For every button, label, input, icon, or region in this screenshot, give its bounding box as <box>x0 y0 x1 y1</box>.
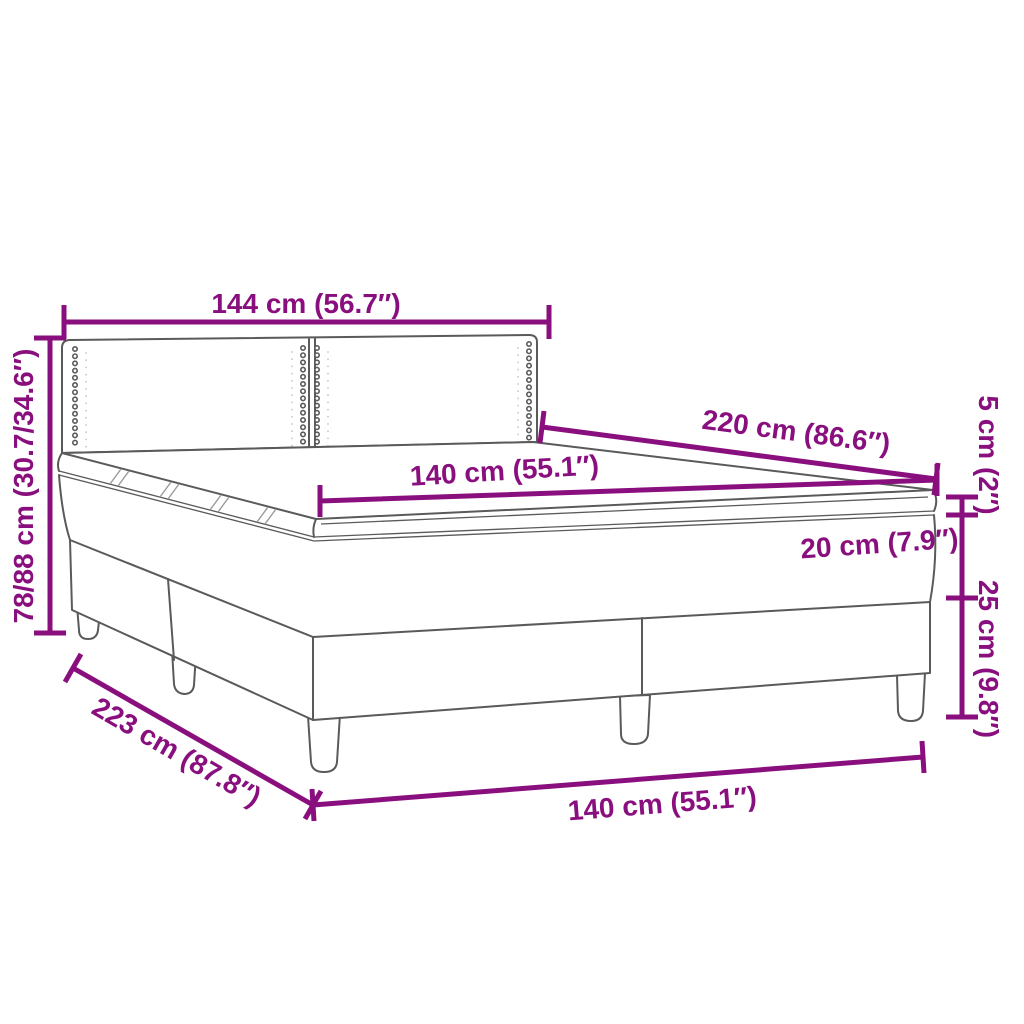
stud-icon <box>527 407 531 411</box>
stud-icon <box>301 432 305 436</box>
stud-dot-icon <box>85 403 87 405</box>
stud-dot-icon <box>291 423 293 425</box>
stud-dot-icon <box>85 424 87 426</box>
dim-headboard-width-label: 144 cm (56.7″) <box>211 288 400 319</box>
stud-icon <box>527 414 531 418</box>
stud-dot-icon <box>85 388 87 390</box>
headboard <box>62 335 537 453</box>
headboard-panel <box>62 335 537 453</box>
stud-icon <box>301 389 305 393</box>
stud-icon <box>315 411 319 415</box>
stud-icon <box>527 435 531 439</box>
stud-icon <box>527 378 531 382</box>
dimension-diagram: 144 cm (56.7″) 78/88 cm (30.7/34.6″) 220… <box>0 0 1024 1024</box>
stud-icon <box>301 382 305 386</box>
mattress-back-left-corner <box>58 453 62 471</box>
stud-icon <box>73 433 77 437</box>
stud-icon <box>527 356 531 360</box>
stud-dot-icon <box>85 352 87 354</box>
stud-dot-icon <box>85 410 87 412</box>
stud-dot-icon <box>85 395 87 397</box>
stud-dot-icon <box>291 387 293 389</box>
stud-dot-icon <box>85 381 87 383</box>
mattress-left-edge <box>59 475 70 540</box>
stud-icon <box>73 404 77 408</box>
stud-icon <box>301 346 305 350</box>
stud-icon <box>73 361 77 365</box>
stud-icon <box>301 353 305 357</box>
stud-icon <box>527 342 531 346</box>
stud-dot-icon <box>291 373 293 375</box>
dim-length-side-label: 223 cm (87.8″) <box>87 691 266 813</box>
stud-dot-icon <box>517 376 519 378</box>
stud-dot-icon <box>85 439 87 441</box>
stud-dot-icon <box>327 387 329 389</box>
stud-icon <box>527 371 531 375</box>
stud-icon <box>315 353 319 357</box>
stud-dot-icon <box>327 366 329 368</box>
stud-icon <box>315 367 319 371</box>
stud-icon <box>73 354 77 358</box>
stud-icon <box>301 403 305 407</box>
leg <box>897 673 925 721</box>
stud-dot-icon <box>327 351 329 353</box>
stud-icon <box>315 439 319 443</box>
stud-dot-icon <box>291 380 293 382</box>
stud-icon <box>73 440 77 444</box>
stud-dot-icon <box>327 409 329 411</box>
stud-icon <box>73 368 77 372</box>
stud-dot-icon <box>327 358 329 360</box>
stud-dot-icon <box>327 416 329 418</box>
stud-icon <box>301 375 305 379</box>
stud-icon <box>527 421 531 425</box>
stud-icon <box>527 349 531 353</box>
dim-base-height-label: 25 cm (9.8″) <box>973 580 1004 738</box>
stud-dot-icon <box>517 354 519 356</box>
stud-icon <box>73 383 77 387</box>
stud-dot-icon <box>327 394 329 396</box>
stud-dot-icon <box>517 405 519 407</box>
stud-dot-icon <box>517 419 519 421</box>
stud-icon <box>301 367 305 371</box>
stud-dot-icon <box>327 430 329 432</box>
stud-icon <box>527 385 531 389</box>
dim-total-height: 78/88 cm (30.7/34.6″) <box>8 338 66 633</box>
stud-dot-icon <box>85 374 87 376</box>
stud-icon <box>315 403 319 407</box>
stud-dot-icon <box>517 426 519 428</box>
dim-total-height-label: 78/88 cm (30.7/34.6″) <box>8 349 39 624</box>
dim-width-front: 140 cm (55.1″) <box>312 741 924 826</box>
leg <box>620 695 650 744</box>
stud-icon <box>73 419 77 423</box>
stud-dot-icon <box>291 366 293 368</box>
stud-dot-icon <box>517 362 519 364</box>
stud-dot-icon <box>517 383 519 385</box>
stud-icon <box>73 397 77 401</box>
leg <box>308 714 340 772</box>
stud-icon <box>301 360 305 364</box>
stud-dot-icon <box>291 430 293 432</box>
stud-icon <box>315 432 319 436</box>
dim-width-front-label: 140 cm (55.1″) <box>567 781 758 827</box>
stud-icon <box>315 346 319 350</box>
stud-dot-icon <box>291 445 293 447</box>
stud-dot-icon <box>517 398 519 400</box>
stud-dot-icon <box>327 373 329 375</box>
stud-icon <box>527 428 531 432</box>
stud-icon <box>301 396 305 400</box>
stud-icon <box>527 363 531 367</box>
stud-icon <box>315 418 319 422</box>
stud-dot-icon <box>327 402 329 404</box>
stud-dot-icon <box>291 394 293 396</box>
stud-dot-icon <box>85 359 87 361</box>
stud-icon <box>315 375 319 379</box>
stud-dot-icon <box>85 431 87 433</box>
stud-icon <box>301 418 305 422</box>
stud-icon <box>301 425 305 429</box>
stud-dot-icon <box>291 409 293 411</box>
stud-dot-icon <box>291 416 293 418</box>
stud-icon <box>301 411 305 415</box>
stud-icon <box>73 412 77 416</box>
stud-dot-icon <box>85 417 87 419</box>
stud-dot-icon <box>85 367 87 369</box>
stud-icon <box>315 425 319 429</box>
stud-icon <box>73 390 77 394</box>
stud-icon <box>315 360 319 364</box>
stud-icon <box>301 439 305 443</box>
stud-icon <box>73 376 77 380</box>
stud-icon <box>73 426 77 430</box>
stud-icon <box>315 382 319 386</box>
stud-dot-icon <box>517 347 519 349</box>
stud-dot-icon <box>327 380 329 382</box>
stud-dot-icon <box>327 438 329 440</box>
stud-icon <box>315 396 319 400</box>
stud-dot-icon <box>291 351 293 353</box>
stud-icon <box>73 347 77 351</box>
box-spring <box>70 540 930 720</box>
stud-dot-icon <box>291 358 293 360</box>
stud-icon <box>315 389 319 393</box>
stud-dot-icon <box>327 423 329 425</box>
stud-icon <box>527 392 531 396</box>
stud-dot-icon <box>517 434 519 436</box>
stud-dot-icon <box>291 402 293 404</box>
stud-dot-icon <box>517 369 519 371</box>
dim-headboard-width: 144 cm (56.7″) <box>64 288 549 339</box>
stud-dot-icon <box>517 412 519 414</box>
stud-dot-icon <box>291 438 293 440</box>
mattress-foot-left-corner <box>313 519 316 537</box>
stud-icon <box>527 399 531 403</box>
stud-dot-icon <box>85 446 87 448</box>
stud-dot-icon <box>517 390 519 392</box>
dim-topper-height-label: 5 cm (2″) <box>973 395 1004 514</box>
bed-drawing: 144 cm (56.7″) 78/88 cm (30.7/34.6″) 220… <box>0 0 1024 1024</box>
